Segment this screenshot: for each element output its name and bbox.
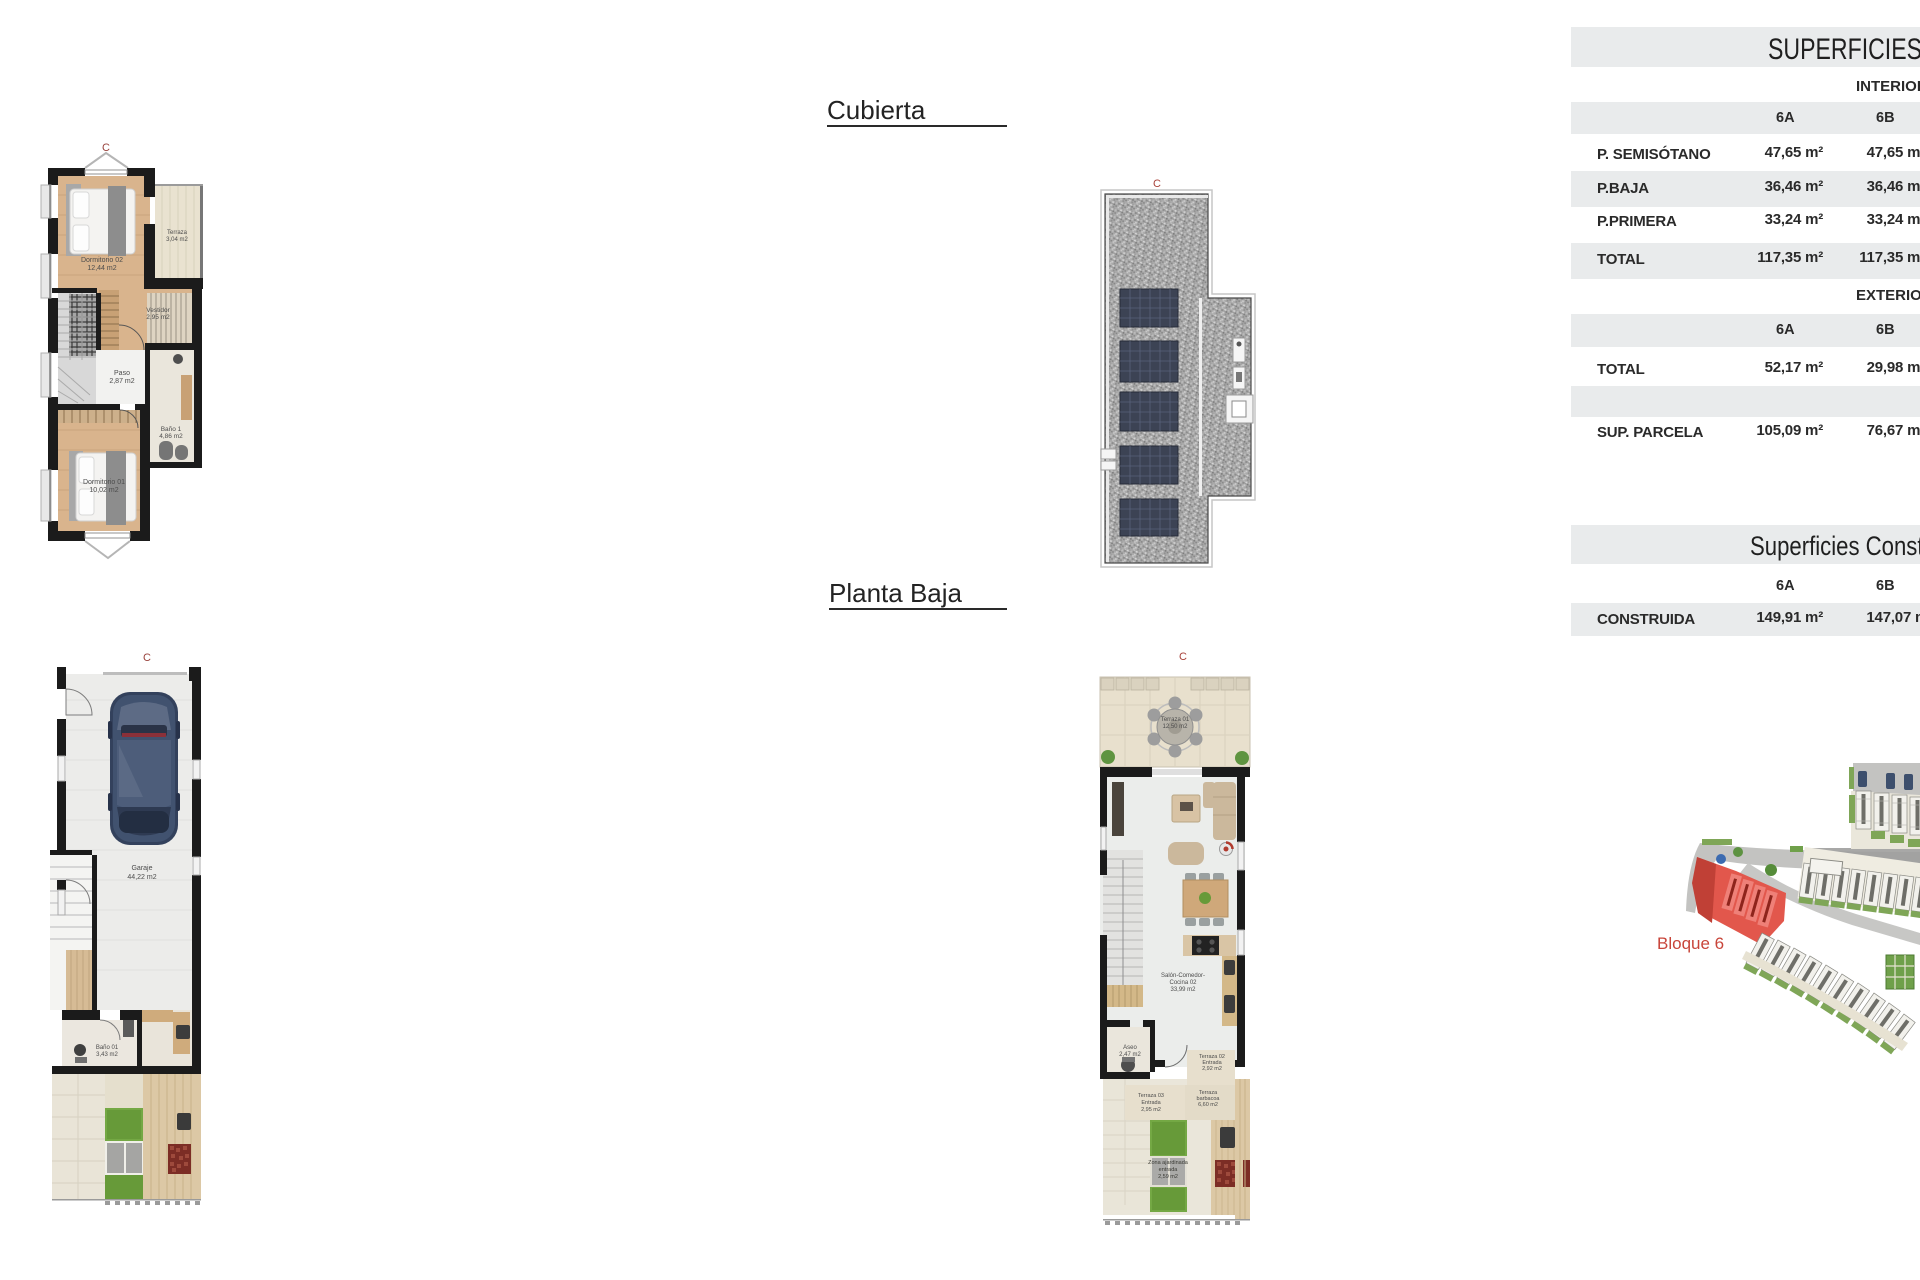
svg-text:Entrada: Entrada [1141,1100,1161,1106]
svg-text:2,95 m2: 2,95 m2 [146,314,170,321]
svg-text:Garaje: Garaje [131,865,152,872]
svg-text:C: C [1179,651,1187,663]
svg-text:Cocina 02: Cocina 02 [1169,980,1197,986]
svg-text:6,60 m2: 6,60 m2 [1198,1102,1218,1108]
svg-text:44,22 m2: 44,22 m2 [127,874,156,881]
svg-text:Bloque 6: Bloque 6 [1657,934,1724,953]
svg-text:2,92 m2: 2,92 m2 [1202,1066,1222,1072]
svg-text:Aseo: Aseo [1123,1045,1137,1051]
svg-text:Vestidor: Vestidor [146,307,170,314]
svg-text:Dormitorio 02: Dormitorio 02 [81,257,123,264]
svg-text:12,44 m2: 12,44 m2 [87,265,116,272]
svg-text:Zona ajardinada: Zona ajardinada [1148,1160,1189,1166]
svg-text:Terraza: Terraza [167,230,188,236]
svg-text:2,95 m2: 2,95 m2 [1141,1107,1161,1113]
svg-text:2,87 m2: 2,87 m2 [109,378,134,385]
svg-text:Dormitorio 01: Dormitorio 01 [83,479,125,486]
svg-text:2,47 m2: 2,47 m2 [1119,1052,1141,1058]
svg-text:C: C [143,652,151,664]
svg-text:3,04 m2: 3,04 m2 [166,237,188,243]
svg-text:Baño 01: Baño 01 [96,1045,119,1051]
svg-text:10,02 m2: 10,02 m2 [89,487,118,494]
svg-text:Terraza 01: Terraza 01 [1161,717,1190,723]
svg-text:33,99 m2: 33,99 m2 [1170,987,1196,993]
svg-text:Paso: Paso [114,370,130,377]
svg-text:Salón-Comedor-: Salón-Comedor- [1161,973,1205,979]
svg-text:2,59 m2: 2,59 m2 [1158,1174,1178,1180]
svg-text:4,86 m2: 4,86 m2 [159,433,183,440]
svg-text:C: C [1153,178,1161,190]
svg-text:Baño 1: Baño 1 [161,426,182,433]
svg-text:Terraza 03: Terraza 03 [1138,1093,1164,1099]
svg-text:entrada: entrada [1159,1167,1179,1173]
svg-text:3,43 m2: 3,43 m2 [96,1052,118,1058]
svg-text:12,50 m2: 12,50 m2 [1162,724,1188,730]
